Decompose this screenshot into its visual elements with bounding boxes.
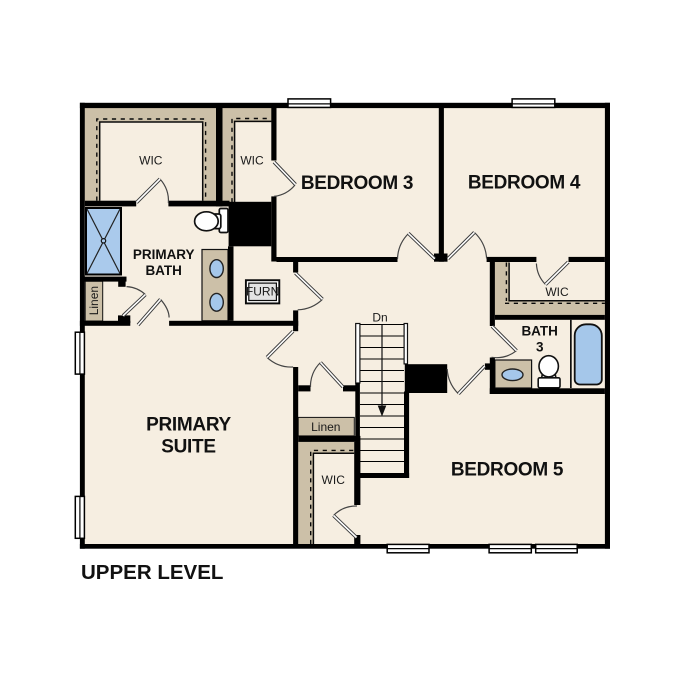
svg-text:Linen: Linen: [87, 286, 101, 315]
svg-text:Dn: Dn: [372, 311, 387, 325]
svg-text:Linen: Linen: [311, 420, 340, 434]
svg-text:WIC: WIC: [545, 285, 569, 299]
svg-text:WIC: WIC: [322, 473, 346, 487]
svg-text:WIC: WIC: [240, 154, 264, 168]
svg-text:UPPER LEVEL: UPPER LEVEL: [81, 561, 223, 584]
svg-text:3: 3: [536, 339, 544, 354]
svg-text:BEDROOM 4: BEDROOM 4: [468, 173, 581, 194]
svg-text:WIC: WIC: [139, 154, 163, 168]
svg-text:BATH: BATH: [145, 263, 182, 278]
svg-text:BEDROOM 5: BEDROOM 5: [451, 460, 564, 481]
svg-text:PRIMARY: PRIMARY: [133, 247, 195, 262]
svg-text:PRIMARY: PRIMARY: [146, 415, 231, 436]
svg-text:FURN: FURN: [246, 285, 279, 299]
svg-text:SUITE: SUITE: [161, 437, 215, 458]
svg-text:BATH: BATH: [521, 323, 558, 338]
svg-text:BEDROOM 3: BEDROOM 3: [301, 173, 413, 194]
